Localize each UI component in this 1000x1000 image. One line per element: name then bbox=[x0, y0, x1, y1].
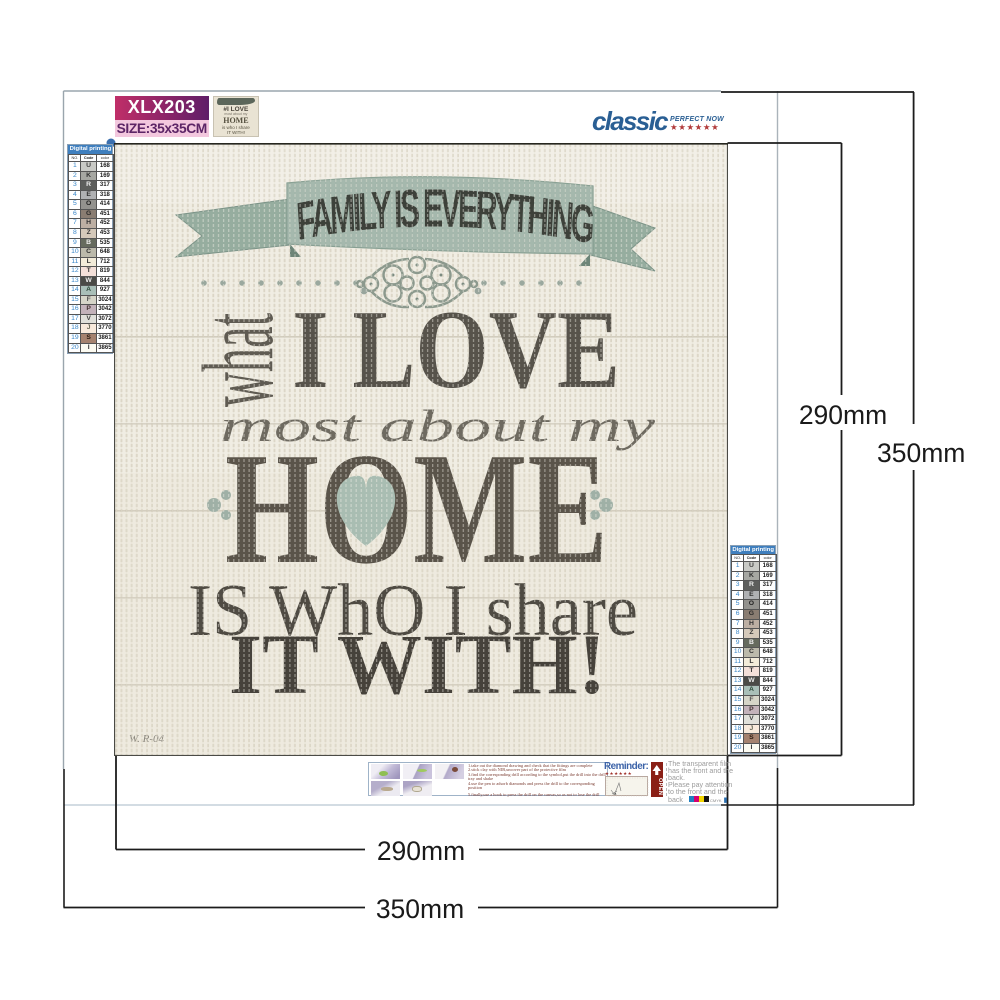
svg-text:OPEN: OPEN bbox=[657, 778, 663, 795]
